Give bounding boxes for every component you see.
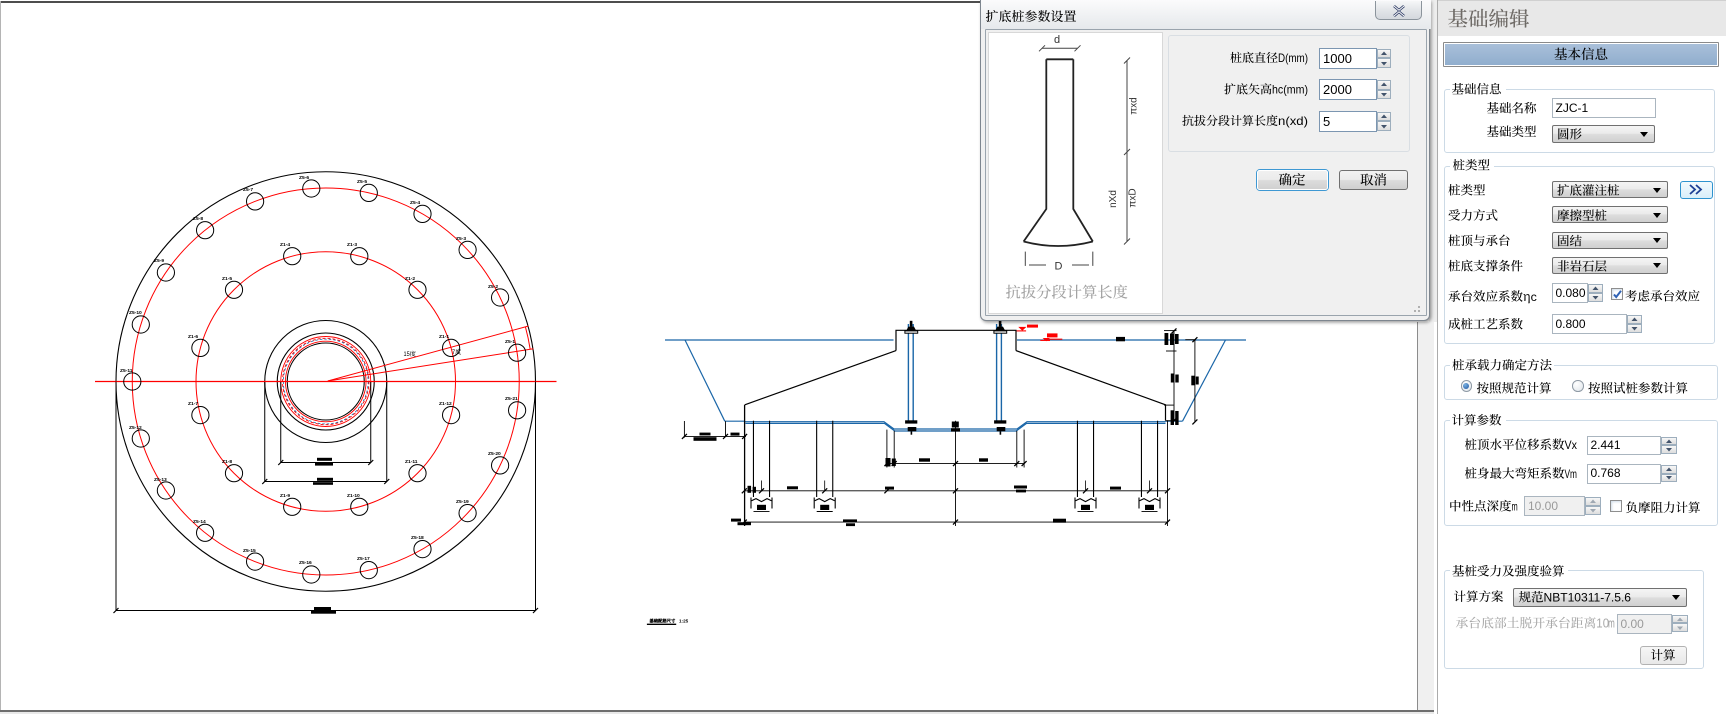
- svg-text:Z5-9: Z5-9: [154, 258, 164, 264]
- svg-text:Z5-21: Z5-21: [505, 396, 518, 402]
- svg-text:πxd: πxd: [1129, 97, 1140, 114]
- svg-text:Z1-9: Z1-9: [280, 493, 290, 499]
- svg-text:Z1-11: Z1-11: [405, 459, 418, 465]
- svg-text:Z5-19: Z5-19: [456, 499, 469, 505]
- svg-text:Z5-13: Z5-13: [154, 477, 167, 483]
- svg-text:Z5-6: Z5-6: [299, 175, 309, 181]
- svg-text:Z1-6: Z1-6: [188, 334, 198, 340]
- svg-text:Z1-3: Z1-3: [347, 242, 357, 248]
- svg-text:Z5-20: Z5-20: [488, 451, 501, 457]
- svg-text:d: d: [1054, 34, 1060, 46]
- svg-text:Z5-4: Z5-4: [410, 200, 420, 206]
- svg-text:Z5-5: Z5-5: [357, 179, 367, 185]
- svg-text:Z5-12: Z5-12: [129, 425, 142, 431]
- svg-text:πxD: πxD: [1128, 188, 1139, 207]
- svg-text:Z5-1: Z5-1: [505, 339, 515, 345]
- svg-text:Z5-15: Z5-15: [243, 548, 256, 554]
- svg-text:nXd: nXd: [1108, 190, 1119, 208]
- svg-text:Z5-18: Z5-18: [411, 535, 424, 541]
- svg-text:Z5-3: Z5-3: [456, 236, 466, 242]
- svg-text:Z1-10: Z1-10: [347, 493, 360, 499]
- svg-text:Z5-8: Z5-8: [193, 216, 203, 222]
- svg-text:Z5-10: Z5-10: [129, 310, 142, 316]
- svg-text:Z1-1: Z1-1: [439, 334, 449, 340]
- svg-text:Z1-8: Z1-8: [222, 459, 232, 465]
- svg-text:Z1-7: Z1-7: [188, 401, 198, 407]
- svg-text:Z1-12: Z1-12: [439, 401, 452, 407]
- svg-text:Z5-17: Z5-17: [357, 556, 370, 562]
- svg-text:Z1-4: Z1-4: [280, 242, 290, 248]
- svg-text:Z5-11: Z5-11: [120, 368, 133, 374]
- svg-text:D: D: [1055, 261, 1063, 273]
- svg-text:Z5-2: Z5-2: [488, 284, 498, 290]
- svg-text:Z5-14: Z5-14: [193, 519, 206, 525]
- svg-text:Z1-2: Z1-2: [405, 276, 415, 282]
- svg-text:Z1-5: Z1-5: [222, 276, 232, 282]
- svg-text:Z5-7: Z5-7: [243, 187, 253, 193]
- svg-text:Z5-16: Z5-16: [299, 560, 312, 566]
